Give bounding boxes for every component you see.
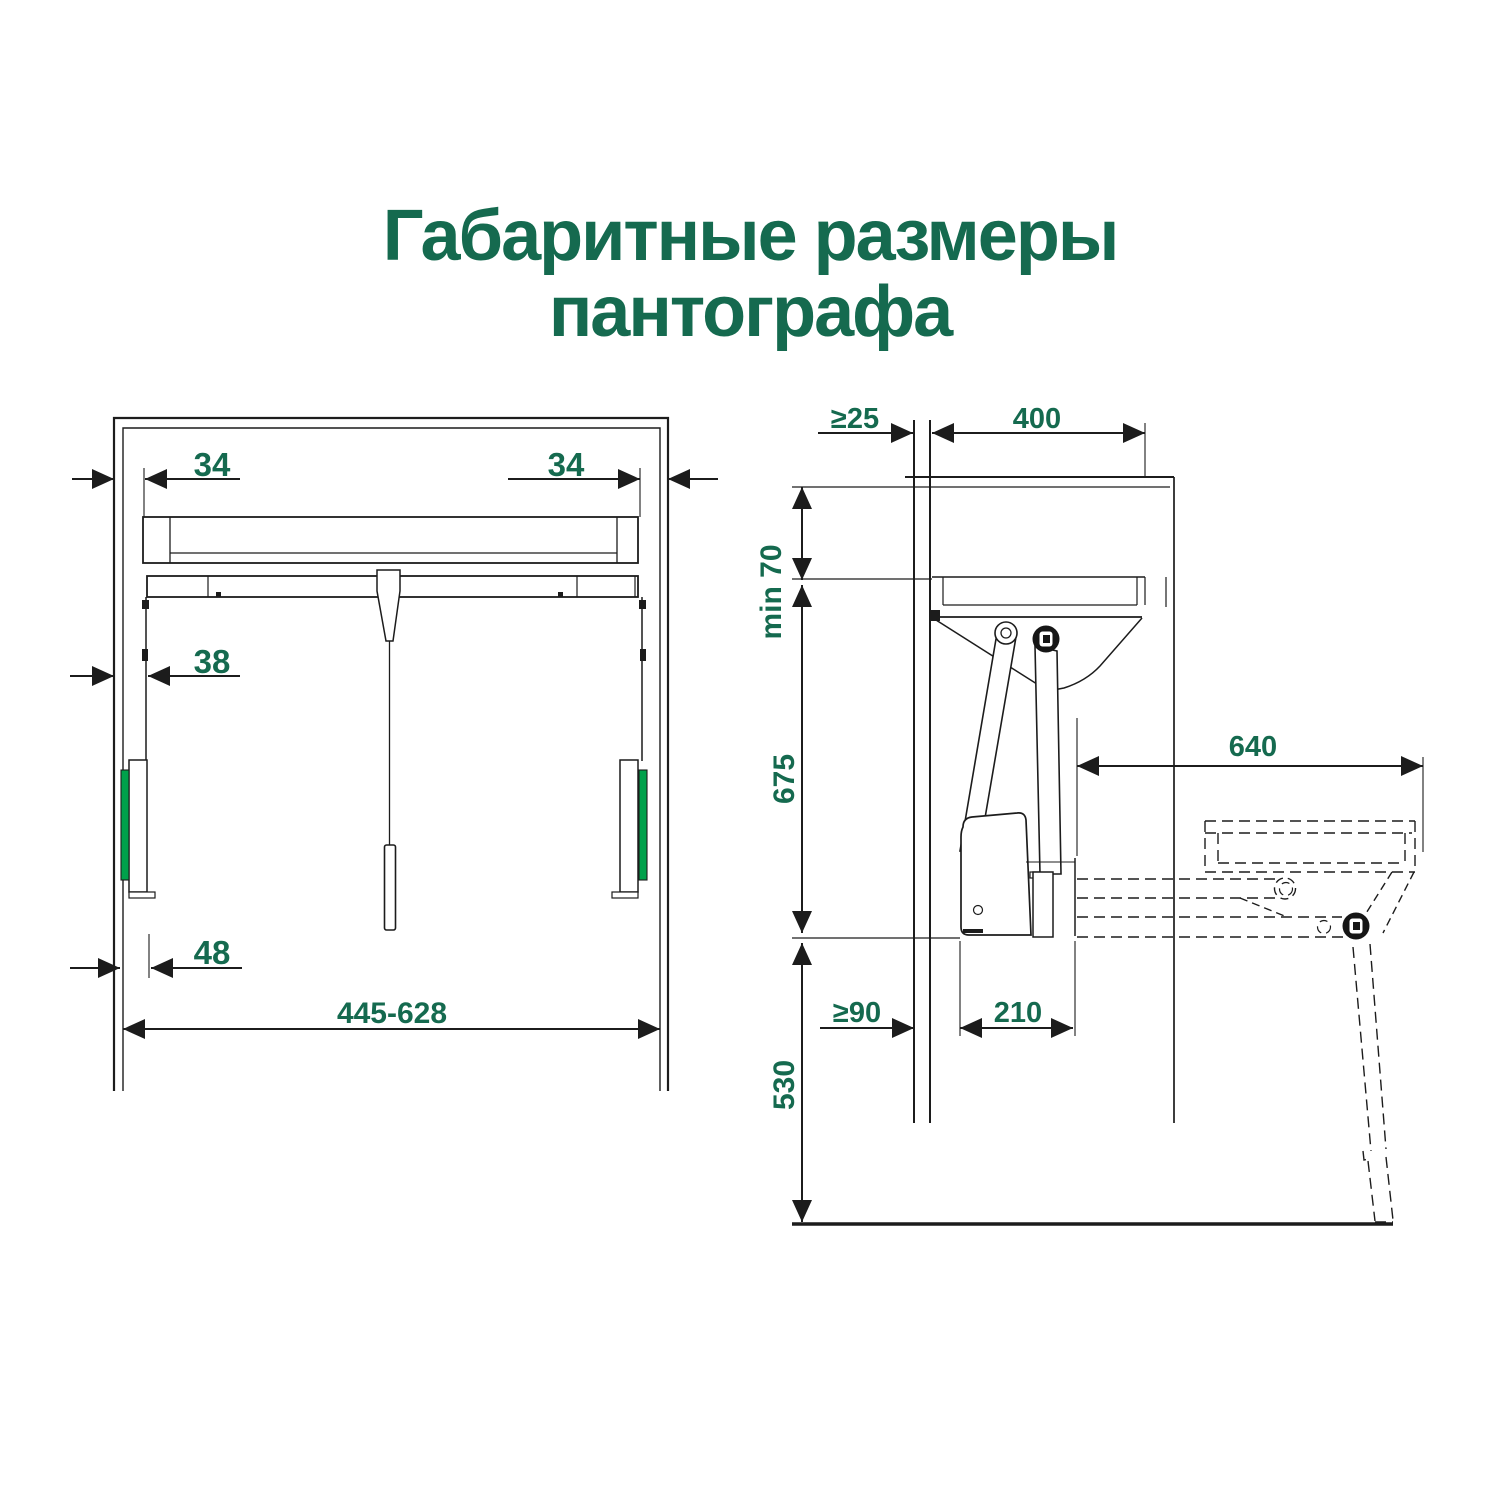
dim-label-drop-height: 530 [768,1060,801,1110]
dim-label-back-gap: ≥25 [831,403,879,435]
pivot-bolt-lowered-mark [1353,922,1360,930]
pulley-mark-right-upper [639,600,646,609]
slider-right-foot [612,892,638,898]
phantom-arm-lower [1077,917,1352,937]
bracket-right-edge [1048,618,1142,691]
front-view: 34 34 38 48 [70,418,718,1091]
phantom-arm-upper [1077,879,1275,898]
damper-strip-left [121,770,129,880]
dimension-mechanism-depth: 210 [960,941,1075,1038]
pulley-mark-right-lower [640,649,646,661]
dim-label-wall-gap: ≥90 [833,997,881,1029]
phantom-hanger-rail [1205,821,1415,872]
phantom-hanging-rod [1353,944,1393,1222]
dimension-inner-depth: 400 [932,403,1145,477]
pivot-bolt-top-mark [1043,635,1050,643]
dim-label-top-clearance: min 70 [755,544,788,639]
phantom-brace [1240,898,1287,917]
body-label-mark [963,929,983,933]
dimension-drop-height: 530 [768,943,812,1222]
dim-label-mechanism-height: 675 [768,754,801,804]
dim-label-rail-inset: 38 [194,643,231,680]
pull-handle [385,845,396,930]
rail-tick-right [558,592,563,597]
technical-drawing: Габаритные размеры пантографа [0,0,1500,1499]
dimension-slider-inset: 48 [70,934,242,978]
dimension-extension-reach: 640 [1077,731,1423,852]
handle-bracket [377,570,400,641]
dimension-back-gap: ≥25 [818,403,913,443]
pulley-mark-left-upper [142,600,149,609]
phantom-rod-bracket [1365,872,1414,933]
damper-strip-right [639,770,647,880]
side-view: ≥25 400 min 70 675 [755,403,1423,1224]
dim-label-slider-inset: 48 [194,934,231,971]
dim-label-extension-reach: 640 [1229,731,1277,763]
slider-right [620,760,638,892]
box-shelf-notches [943,577,1166,607]
phantom-lowered-assembly [1077,821,1415,1222]
title-line-2: пантографа [549,272,954,352]
dimension-top-clearance: min 70 [755,487,932,640]
drawing-page: Габаритные размеры пантографа [0,0,1500,1499]
phantom-arm-upper-hole [1280,883,1293,896]
lift-arm-rear [1035,646,1061,874]
page-title: Габаритные размеры пантографа [383,196,1118,352]
slider-left-foot [129,892,155,898]
body-screw [974,906,983,915]
dimension-wall-gap: ≥90 [820,997,914,1038]
side-panel [914,420,930,1123]
dimension-offset-left: 34 [72,446,240,517]
dimension-offset-right: 34 [508,446,718,517]
dim-label-offset-left: 34 [194,446,231,483]
pulley-mark-left-lower [142,649,148,661]
dimension-width-range: 445-628 [123,997,660,1039]
rail-tick-left [216,592,221,597]
wall-mount-block [930,610,940,621]
slider-left [129,760,147,892]
arm-head-hole [1001,628,1011,638]
crossbar [143,517,638,563]
slide-channel [1033,872,1053,937]
dim-label-inner-depth: 400 [1013,403,1061,435]
phantom-arm-lower-hole [1318,921,1331,934]
title-line-1: Габаритные размеры [383,196,1118,276]
lift-body [961,813,1031,935]
dim-label-width-range: 445-628 [337,997,447,1030]
dimension-rail-inset: 38 [70,643,240,686]
dim-label-mechanism-depth: 210 [994,997,1042,1029]
dim-label-offset-right: 34 [548,446,585,483]
